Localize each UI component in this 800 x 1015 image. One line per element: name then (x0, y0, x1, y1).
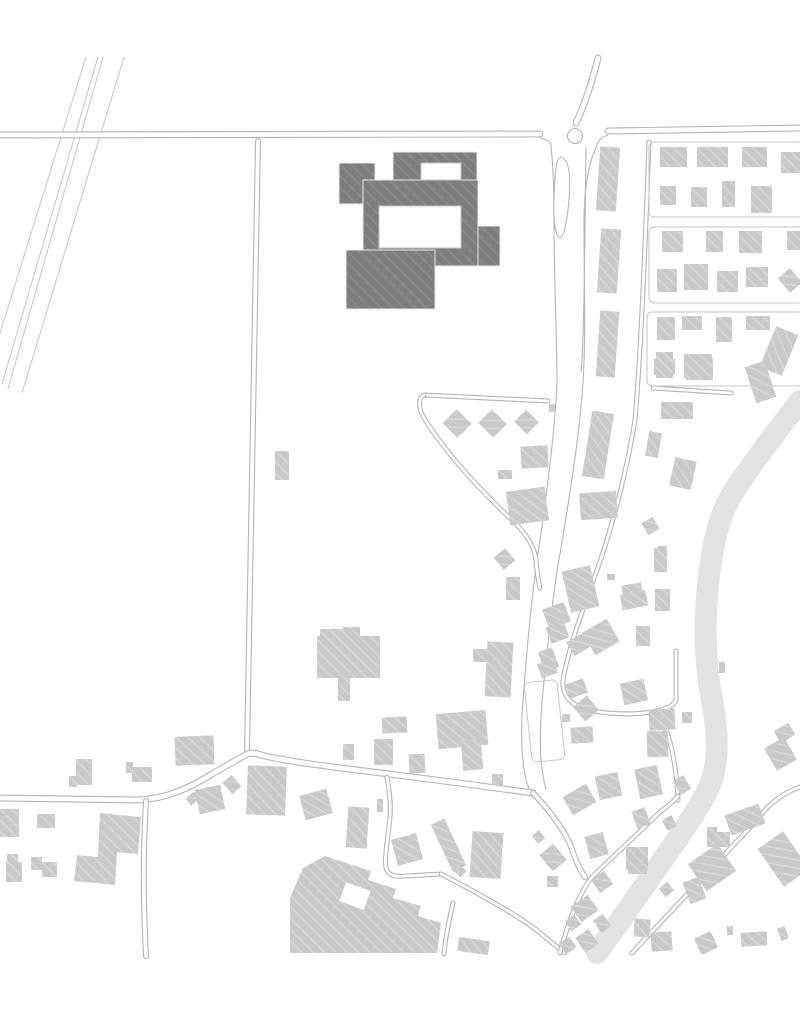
building (626, 847, 648, 870)
building (596, 310, 620, 377)
architectural-site-plan-map (0, 0, 800, 1015)
parcel-block-outline (524, 679, 565, 762)
building (431, 818, 467, 871)
building (498, 470, 512, 479)
building (659, 882, 674, 897)
traffic-island (554, 157, 570, 238)
junction-layer (554, 129, 583, 239)
building (597, 228, 621, 293)
building (727, 926, 733, 935)
building (746, 316, 770, 330)
building (582, 411, 614, 480)
building (661, 402, 693, 419)
building (686, 359, 713, 380)
building (391, 833, 423, 866)
building (787, 231, 800, 250)
building (650, 931, 672, 951)
building (246, 765, 287, 815)
building (706, 231, 723, 252)
building (469, 831, 503, 879)
building (758, 831, 800, 886)
building (717, 271, 738, 292)
site-plan-page (0, 0, 800, 1015)
building (781, 152, 800, 173)
rail-lines-layer (0, 57, 124, 393)
project-building-wing (478, 226, 500, 266)
road-edge-line (540, 138, 551, 146)
building (31, 857, 42, 870)
building (175, 735, 215, 765)
building (461, 739, 484, 771)
road-casing-culdesac-north (656, 651, 676, 711)
road-fill-south-lane (144, 801, 146, 956)
building (443, 409, 472, 438)
building (660, 186, 676, 205)
road-fill-main-road-east (608, 128, 800, 131)
building (223, 775, 242, 794)
building (582, 619, 619, 656)
building (37, 814, 55, 828)
building (506, 486, 549, 525)
building (382, 716, 408, 733)
building (648, 708, 675, 730)
project-building-wing (346, 250, 435, 309)
building (657, 317, 675, 340)
building (343, 627, 360, 636)
building (719, 662, 725, 673)
building (563, 784, 597, 816)
road-edge-line (596, 135, 608, 148)
building (682, 712, 692, 723)
building (682, 316, 702, 330)
building (69, 776, 77, 787)
rail-line (0, 57, 86, 333)
building (764, 737, 797, 771)
building (485, 641, 514, 697)
building (741, 931, 768, 946)
building (647, 731, 669, 758)
building (473, 649, 487, 662)
building (595, 772, 622, 800)
building (547, 876, 558, 887)
building (494, 548, 516, 570)
building (669, 457, 697, 490)
building (478, 409, 506, 437)
building (596, 146, 620, 211)
building (633, 918, 650, 937)
rail-line (8, 57, 103, 389)
building (707, 827, 717, 847)
road-fill-north-stub (576, 58, 598, 123)
building (628, 870, 647, 874)
building (654, 359, 675, 375)
project-building-courtyard (379, 206, 461, 248)
project-building-layer (339, 152, 500, 309)
building (520, 445, 548, 468)
building (684, 264, 708, 290)
building (562, 714, 570, 722)
building (636, 626, 650, 646)
building (751, 186, 772, 213)
building (506, 577, 520, 600)
building (655, 589, 670, 611)
building (514, 410, 539, 435)
building (717, 832, 730, 847)
building (195, 785, 226, 815)
rail-line (2, 57, 98, 384)
building (409, 754, 426, 774)
building (317, 636, 380, 678)
building (7, 854, 18, 863)
building (532, 830, 545, 843)
building (492, 774, 503, 785)
building (641, 517, 659, 536)
road-edge-line (581, 148, 586, 372)
building (571, 726, 594, 743)
building (42, 862, 57, 877)
building (620, 679, 648, 706)
building (377, 799, 383, 812)
building-complex (74, 813, 141, 885)
building (607, 574, 615, 580)
building (549, 404, 555, 412)
building (338, 678, 350, 701)
building (777, 926, 789, 941)
building (584, 832, 608, 859)
road-fill-main-road-west (0, 134, 540, 135)
building (126, 762, 133, 773)
building (346, 806, 370, 848)
building (539, 844, 566, 872)
building (778, 268, 800, 293)
building (132, 767, 152, 782)
building (374, 739, 393, 765)
building (573, 695, 599, 721)
building (660, 147, 687, 167)
rail-line (22, 57, 124, 393)
building (657, 269, 677, 292)
road-fill-field-lane (247, 141, 258, 752)
building (716, 317, 732, 342)
building (697, 147, 728, 167)
building (6, 862, 22, 882)
project-building-courtyard (421, 163, 461, 180)
building (658, 546, 667, 553)
building (0, 809, 19, 837)
building (634, 765, 663, 799)
building (645, 431, 662, 458)
building (746, 267, 768, 287)
building (722, 181, 735, 207)
building (691, 187, 707, 207)
roundabout-circle (568, 129, 583, 144)
building (739, 231, 762, 253)
building (76, 759, 92, 785)
building (662, 231, 683, 252)
building (343, 744, 354, 760)
building (742, 147, 767, 167)
building (275, 451, 289, 480)
building (694, 931, 718, 955)
building (457, 937, 490, 955)
building (579, 491, 618, 521)
building (299, 789, 333, 820)
building (320, 629, 344, 637)
